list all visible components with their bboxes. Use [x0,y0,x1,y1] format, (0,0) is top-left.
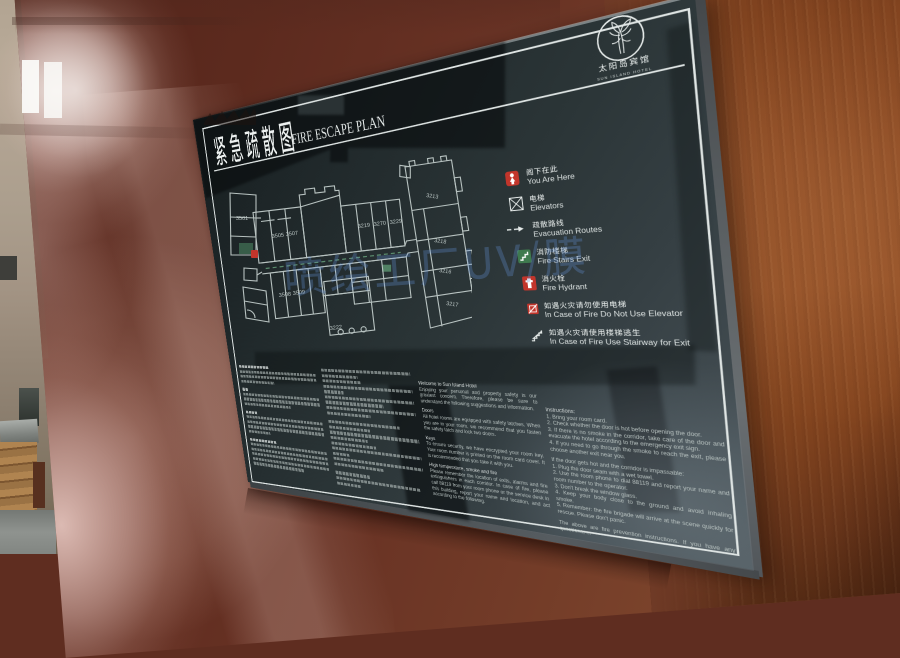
svg-text:3505: 3505 [272,233,285,240]
svg-text:3217: 3217 [446,301,459,309]
svg-text:3213: 3213 [426,193,439,201]
svg-text:3229: 3229 [390,219,403,226]
svg-text:3222: 3222 [330,325,343,332]
svg-text:3219: 3219 [358,223,371,230]
svg-text:3507: 3507 [286,231,299,238]
svg-text:3270: 3270 [374,221,387,228]
svg-text:3501: 3501 [236,216,248,222]
